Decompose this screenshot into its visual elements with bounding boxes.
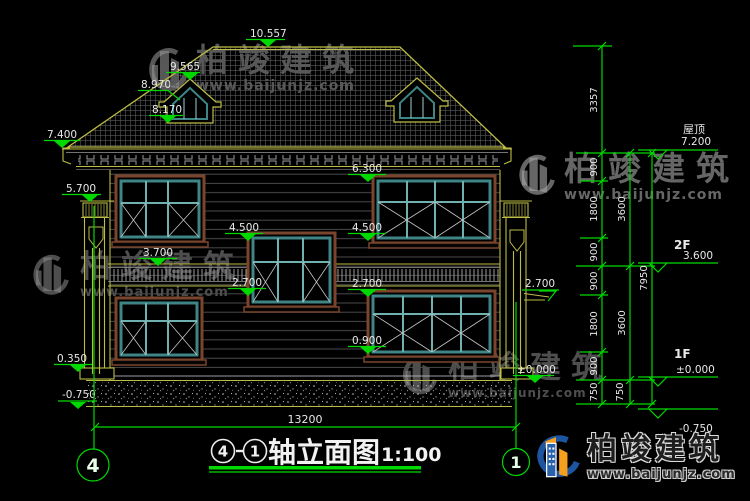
level-ground: ±0.000 xyxy=(517,364,556,376)
cad-canvas: 柏竣建筑 www.baijunjz.com 柏竣建筑 www.baijunjz.… xyxy=(0,0,750,501)
brand-logo: 柏竣建筑 www.baijunjz.com xyxy=(531,435,736,485)
level-stair-sill-right: 2.700 xyxy=(352,278,382,290)
brand-url: www.baijunjz.com xyxy=(587,468,736,481)
level-belt: 3.700 xyxy=(143,247,173,259)
story-value: 3.600 xyxy=(683,250,713,262)
window-2f-left xyxy=(112,176,208,247)
dim-text: 900 xyxy=(589,356,600,375)
story-value: 7.200 xyxy=(681,136,711,148)
level-plinth: 0.350 xyxy=(57,353,87,365)
window-2f-right xyxy=(369,176,499,248)
dim-text: 3600 xyxy=(617,196,628,221)
dim-text: 750 xyxy=(615,382,626,401)
dim-text: 13200 xyxy=(288,413,323,426)
drawing-title: 4 1 轴立面图 1:100 xyxy=(209,436,441,472)
level-dormer-peak: 9.565 xyxy=(170,61,200,73)
brand-name: 柏竣建筑 xyxy=(587,435,736,465)
title-axis-start: 4 xyxy=(218,443,228,461)
right-dimension-chains: 3357 900 1800 900 900 1800 900 750 3600 … xyxy=(573,42,656,408)
window-stair-center xyxy=(244,233,339,312)
eave-cornice xyxy=(62,149,512,170)
window-1f-right xyxy=(364,291,499,362)
dim-text: 1800 xyxy=(589,311,600,336)
level-dormer-eave: 8.970 xyxy=(141,79,171,91)
dim-text: 900 xyxy=(589,157,600,176)
side-canopy xyxy=(524,294,549,301)
window-1f-left xyxy=(112,298,206,365)
level-ridge: 10.557 xyxy=(250,28,287,40)
dim-text: 7950 xyxy=(639,265,650,290)
elevation-drawing: 3357 900 1800 900 900 1800 900 750 3600 … xyxy=(0,0,750,501)
right-downspout xyxy=(510,230,524,374)
dim-text: 750 xyxy=(589,382,600,401)
level-window-head-2f: 6.300 xyxy=(352,163,382,175)
level-canopy: 2.700 xyxy=(525,278,555,290)
level-dormer-base: 8.170 xyxy=(152,104,182,116)
dim-text: 900 xyxy=(589,242,600,261)
dim-text: 900 xyxy=(589,271,600,290)
level-stair-sill-left: 2.700 xyxy=(232,277,262,289)
dim-text: 1800 xyxy=(589,196,600,221)
story-level-marks: 屋顶 7.200 2F 3.600 1F ±0.000 -0.750 xyxy=(638,123,718,435)
story-label: 屋顶 xyxy=(683,123,705,136)
dim-text: 3357 xyxy=(589,87,600,112)
level-sill-2f-left: 4.500 xyxy=(229,222,259,234)
dim-text: 3600 xyxy=(617,310,628,335)
title-axis-end: 1 xyxy=(250,443,260,461)
brand-logo-icon xyxy=(531,435,581,485)
axis-bubble-1: 1 xyxy=(503,449,530,476)
foundation xyxy=(86,376,512,407)
axis-number: 4 xyxy=(86,455,99,477)
level-sill-2f-right: 4.500 xyxy=(352,222,382,234)
axis-bubble-4: 4 xyxy=(77,449,109,481)
story-label: 1F xyxy=(674,347,691,361)
story-value: ±0.000 xyxy=(676,364,715,376)
level-left-eave: 7.400 xyxy=(47,129,77,141)
axis-number: 1 xyxy=(510,453,521,472)
left-downspout xyxy=(89,227,103,374)
level-sill-1f: 0.900 xyxy=(352,335,382,347)
level-site: -0.750 xyxy=(62,389,96,401)
title-text: 轴立面图 xyxy=(268,436,380,469)
level-column-top: 5.700 xyxy=(66,183,96,195)
title-scale: 1:100 xyxy=(381,444,441,466)
